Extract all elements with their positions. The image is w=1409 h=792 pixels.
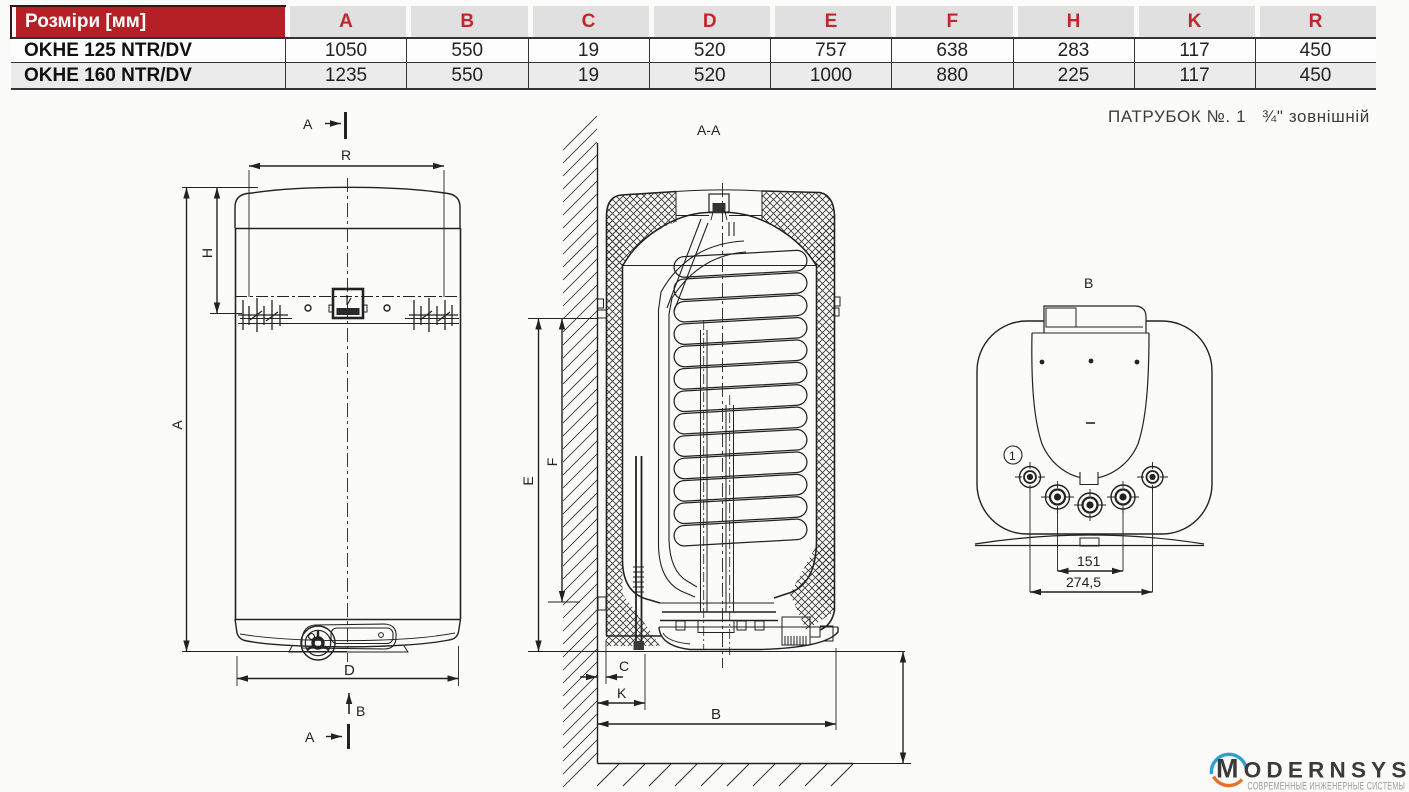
svg-text:1: 1	[1009, 449, 1016, 463]
svg-text:A-A: A-A	[697, 122, 721, 138]
svg-text:274,5: 274,5	[1066, 574, 1101, 590]
svg-text:151: 151	[1077, 553, 1101, 569]
svg-text:E: E	[520, 476, 536, 485]
svg-text:A: A	[303, 116, 313, 132]
svg-text:H: H	[199, 248, 215, 258]
svg-text:A: A	[305, 729, 315, 745]
svg-text:C: C	[619, 658, 629, 674]
svg-text:K: K	[617, 685, 627, 701]
svg-text:B: B	[1084, 275, 1093, 291]
svg-text:F: F	[544, 458, 560, 467]
svg-text:D: D	[344, 662, 355, 679]
svg-text:СОВРЕМЕННЫЕ ИНЖЕНЕРНЫЕ СИСТЕМЫ: СОВРЕМЕННЫЕ ИНЖЕНЕРНЫЕ СИСТЕМЫ	[1248, 780, 1406, 792]
svg-text:MODERNSYS: MODERNSYS	[1216, 754, 1409, 784]
svg-text:A: A	[169, 420, 185, 430]
svg-text:B: B	[711, 706, 721, 723]
svg-text:B: B	[356, 703, 365, 719]
svg-text:ПАТРУБОК №. 1 ¾" зовнішній: ПАТРУБОК №. 1 ¾" зовнішній	[1108, 107, 1370, 126]
svg-text:R: R	[341, 147, 351, 163]
